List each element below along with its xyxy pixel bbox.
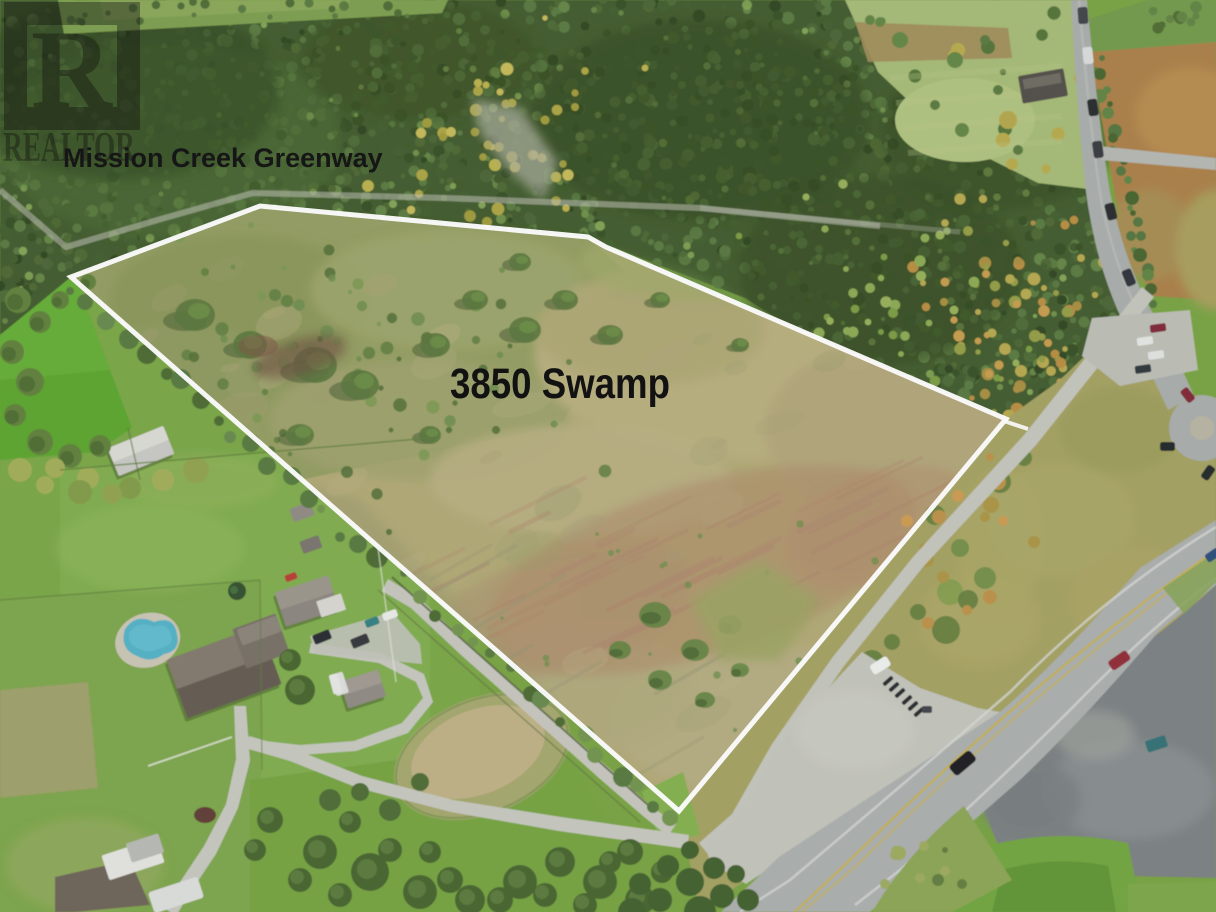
svg-text:3850 Swamp: 3850 Swamp	[450, 360, 670, 408]
svg-text:R: R	[31, 8, 113, 132]
svg-text:Mission Creek Greenway: Mission Creek Greenway	[63, 143, 383, 173]
